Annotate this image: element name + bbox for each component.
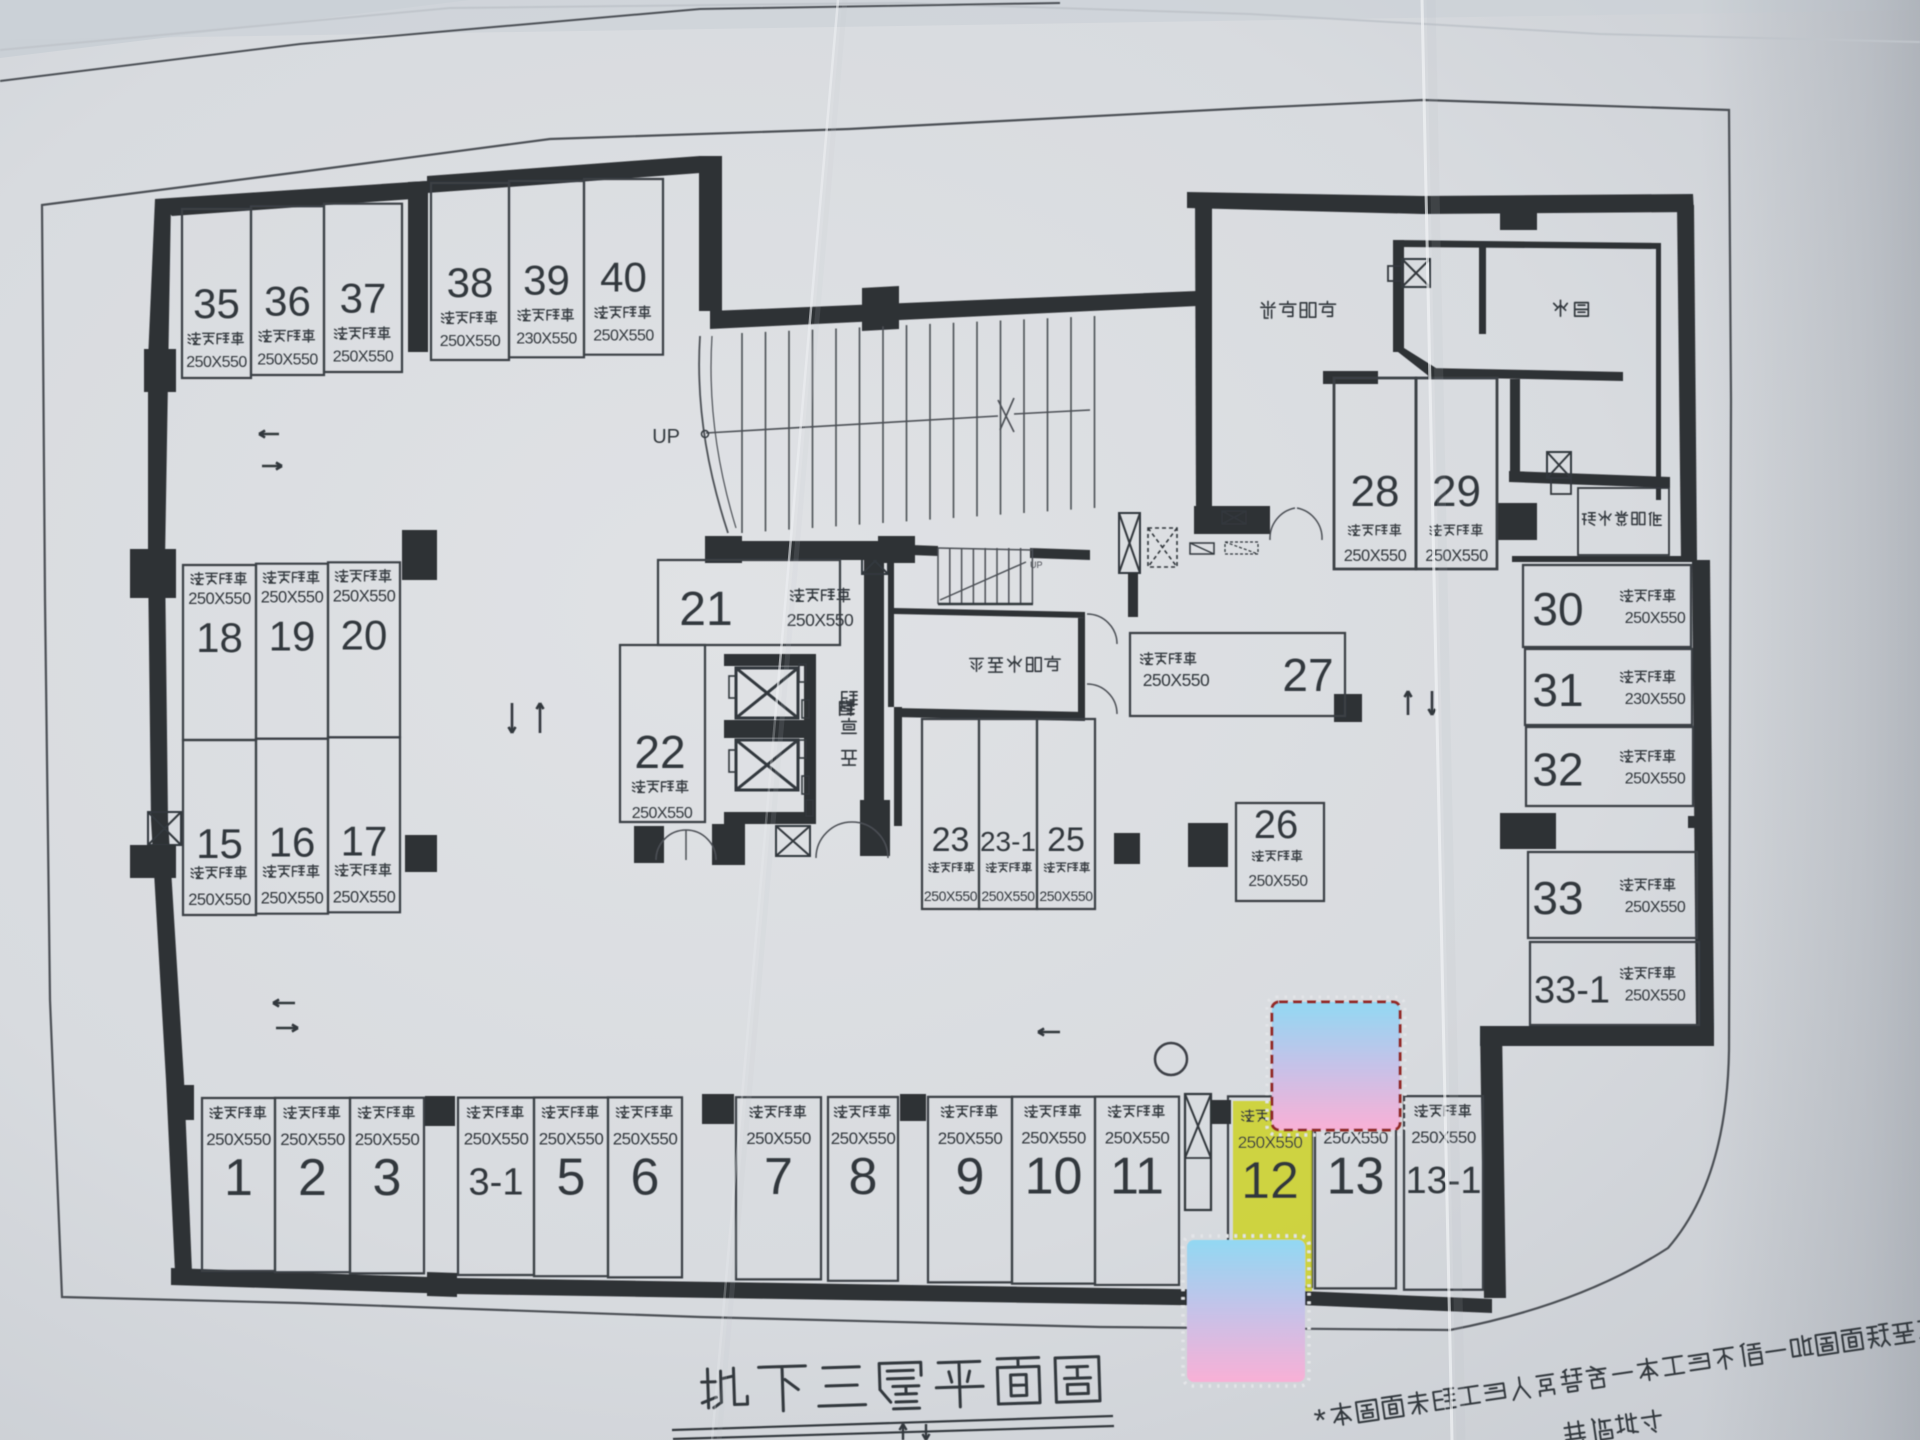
svg-text:13: 13 (1327, 1147, 1385, 1205)
svg-text:1: 1 (224, 1149, 253, 1207)
svg-text:250X550: 250X550 (1411, 1128, 1476, 1147)
svg-text:250X550: 250X550 (1248, 873, 1308, 890)
svg-text:33-1: 33-1 (1534, 970, 1610, 1012)
svg-text:38: 38 (447, 259, 494, 306)
svg-text:5: 5 (557, 1148, 586, 1206)
svg-text:250X550: 250X550 (257, 351, 318, 368)
svg-text:26: 26 (1254, 803, 1299, 847)
svg-text:250X550: 250X550 (280, 1130, 345, 1149)
svg-text:250X550: 250X550 (188, 891, 251, 909)
svg-text:12: 12 (1241, 1152, 1299, 1210)
svg-text:250X550: 250X550 (1625, 771, 1686, 788)
svg-text:11: 11 (1110, 1148, 1164, 1206)
svg-text:250X550: 250X550 (1625, 610, 1686, 627)
svg-text:250X550: 250X550 (186, 354, 247, 371)
svg-text:23: 23 (932, 821, 970, 859)
svg-text:250X550: 250X550 (261, 589, 324, 607)
svg-text:18: 18 (196, 614, 243, 661)
svg-text:250X550: 250X550 (440, 333, 501, 350)
svg-text:21: 21 (679, 583, 732, 636)
svg-text:25: 25 (1047, 821, 1085, 859)
svg-text:39: 39 (523, 256, 570, 303)
svg-text:16: 16 (269, 819, 316, 866)
svg-text:19: 19 (269, 613, 316, 660)
svg-text:UP: UP (652, 426, 680, 448)
svg-text:250X550: 250X550 (613, 1129, 678, 1148)
svg-text:250X550: 250X550 (464, 1130, 529, 1149)
svg-text:28: 28 (1351, 467, 1400, 516)
svg-text:22: 22 (634, 726, 685, 778)
svg-text:6: 6 (631, 1148, 660, 1206)
svg-text:250X550: 250X550 (981, 888, 1035, 904)
svg-text:250X550: 250X550 (188, 590, 251, 608)
svg-text:27: 27 (1282, 649, 1333, 701)
svg-text:250X550: 250X550 (355, 1130, 420, 1149)
svg-text:37: 37 (340, 275, 387, 322)
svg-text:250X550: 250X550 (1143, 670, 1210, 690)
svg-text:250X550: 250X550 (938, 1129, 1003, 1148)
svg-text:3-1: 3-1 (469, 1162, 524, 1204)
svg-text:250X550: 250X550 (206, 1130, 271, 1149)
svg-text:250X550: 250X550 (333, 888, 396, 906)
svg-text:250X550: 250X550 (787, 610, 854, 630)
svg-text:3: 3 (373, 1149, 402, 1207)
svg-text:23-1: 23-1 (980, 826, 1036, 857)
svg-text:33: 33 (1532, 872, 1583, 924)
svg-text:250X550: 250X550 (1238, 1133, 1303, 1152)
svg-text:250X550: 250X550 (261, 890, 324, 908)
svg-text:250X550: 250X550 (333, 349, 394, 366)
svg-text:250X550: 250X550 (1039, 888, 1093, 904)
svg-text:250X550: 250X550 (1625, 988, 1686, 1005)
svg-text:30: 30 (1532, 583, 1583, 635)
svg-text:10: 10 (1025, 1148, 1083, 1206)
svg-text:230X550: 230X550 (1625, 691, 1686, 708)
svg-text:7: 7 (764, 1148, 793, 1206)
svg-text:230X550: 230X550 (516, 330, 577, 347)
svg-text:31: 31 (1532, 664, 1583, 716)
svg-text:250X550: 250X550 (632, 805, 693, 822)
svg-text:9: 9 (956, 1148, 985, 1206)
svg-text:8: 8 (849, 1148, 878, 1206)
svg-text:35: 35 (193, 280, 240, 327)
svg-text:250X550: 250X550 (1021, 1129, 1086, 1148)
svg-text:36: 36 (264, 277, 311, 324)
svg-text:20: 20 (341, 611, 388, 658)
svg-text:250X550: 250X550 (1105, 1129, 1170, 1148)
svg-text:250X550: 250X550 (924, 888, 978, 904)
svg-text:250X550: 250X550 (539, 1129, 604, 1148)
svg-text:17: 17 (341, 817, 388, 864)
svg-text:250X550: 250X550 (746, 1129, 811, 1148)
svg-text:32: 32 (1532, 744, 1583, 796)
svg-text:UP: UP (1030, 560, 1043, 570)
svg-text:250X550: 250X550 (831, 1129, 896, 1148)
svg-text:250X550: 250X550 (593, 328, 654, 345)
svg-text:250X550: 250X550 (333, 587, 396, 605)
svg-text:250X550: 250X550 (1625, 899, 1686, 916)
svg-text:40: 40 (600, 254, 647, 301)
svg-text:250X550: 250X550 (1344, 547, 1407, 565)
svg-text:15: 15 (196, 820, 243, 867)
svg-text:2: 2 (298, 1149, 327, 1207)
svg-text:13-1: 13-1 (1405, 1160, 1481, 1202)
